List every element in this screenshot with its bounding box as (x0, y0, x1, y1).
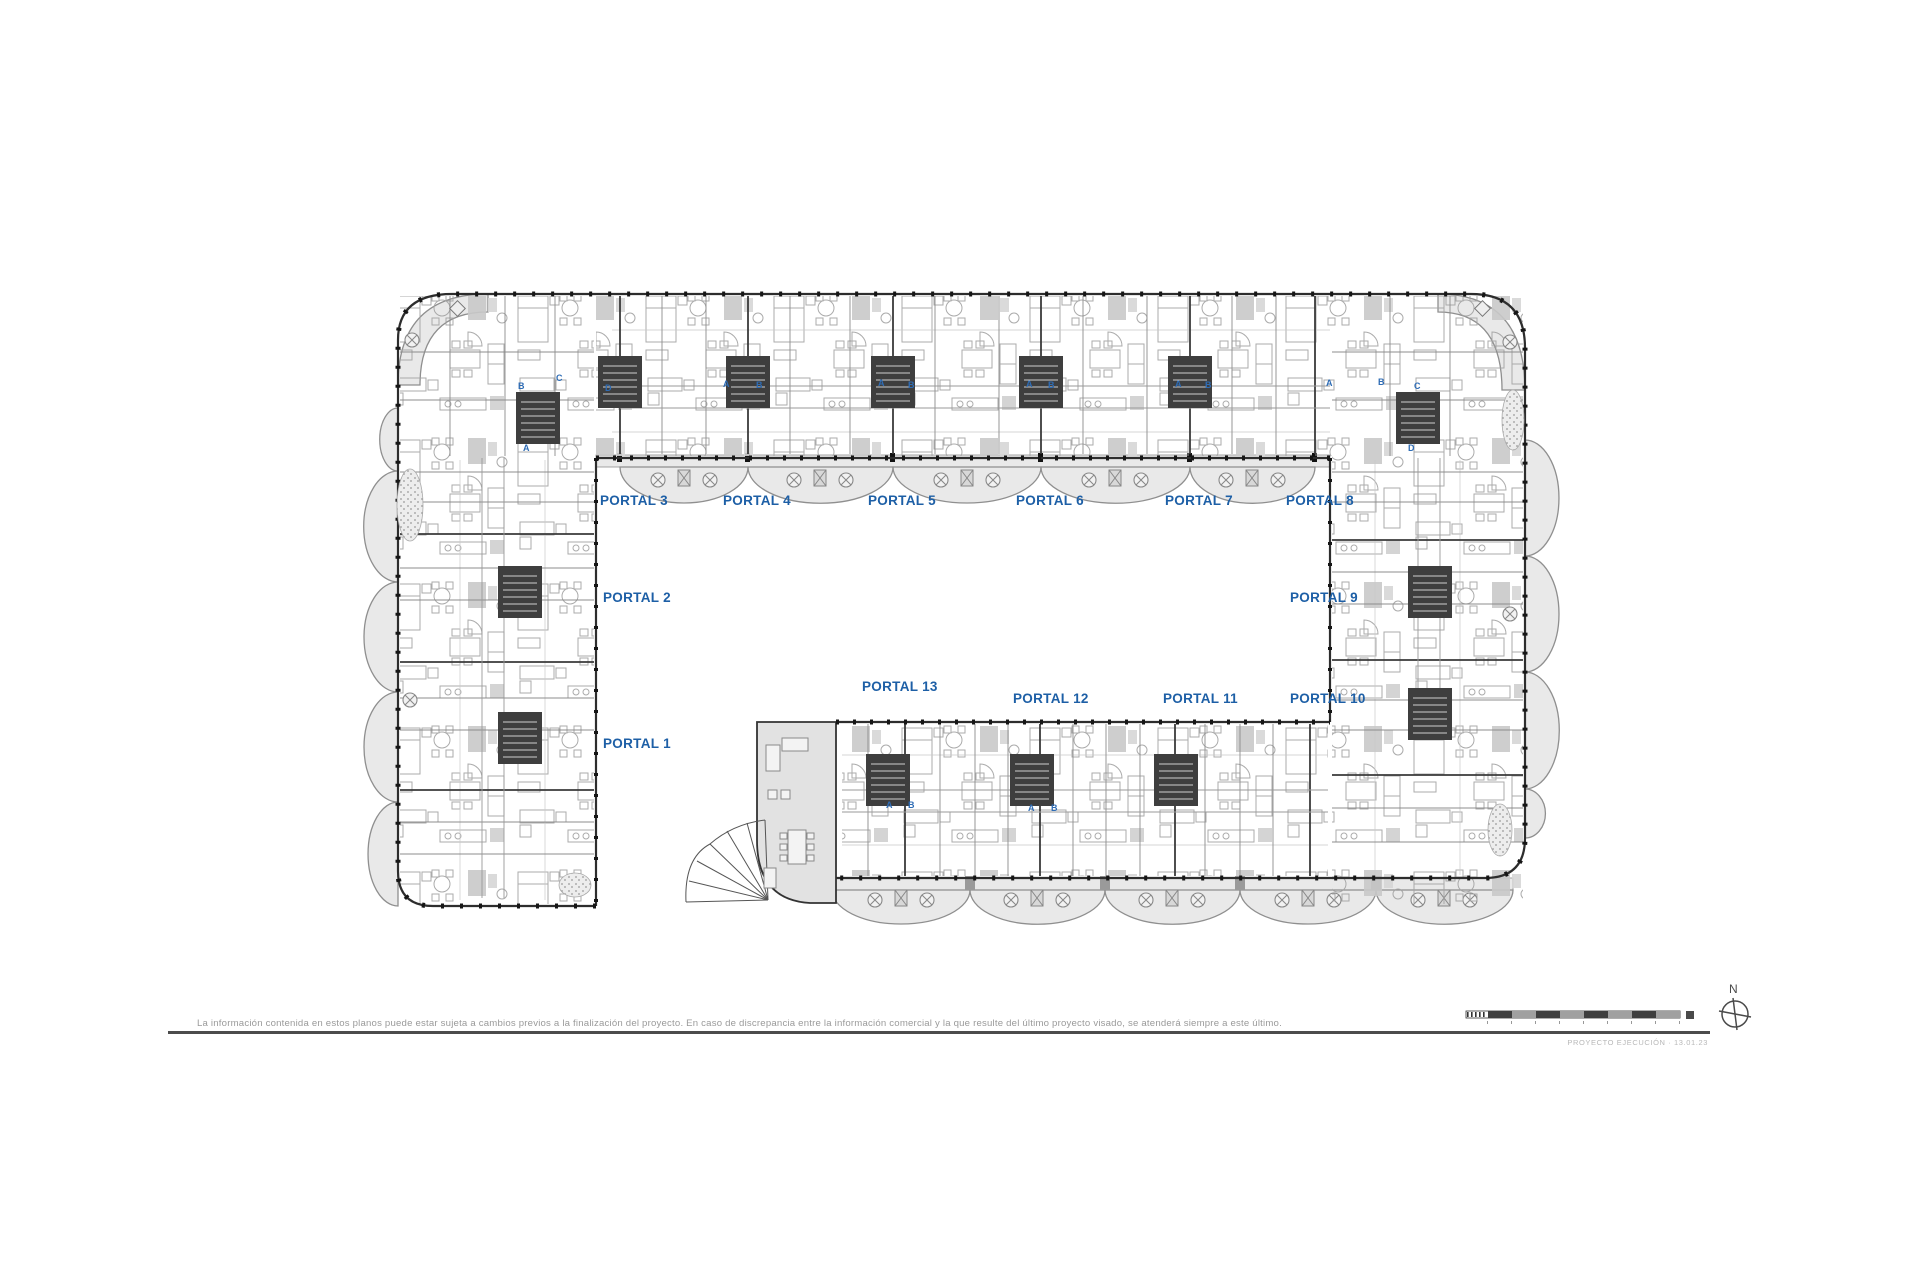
unit-letter: C (556, 373, 563, 383)
portal-label-12: PORTAL 12 (1013, 691, 1089, 706)
portal-label-11: PORTAL 11 (1163, 691, 1238, 706)
portal-label-5: PORTAL 5 (868, 493, 936, 508)
unit-letter: A (523, 443, 530, 453)
portal-label-8: PORTAL 8 (1286, 493, 1354, 508)
unit-letter: D (605, 383, 612, 393)
unit-letter: B (1205, 380, 1212, 390)
portal-label-10: PORTAL 10 (1290, 691, 1366, 706)
unit-letter: B (1378, 377, 1385, 387)
right-balconies (1525, 440, 1559, 838)
north-compass (1719, 998, 1751, 1030)
floor-plan-page: PORTAL 1 PORTAL 2 PORTAL 3 PORTAL 4 PORT… (0, 0, 1920, 1280)
portal-label-7: PORTAL 7 (1165, 493, 1233, 508)
portal-label-6: PORTAL 6 (1016, 493, 1084, 508)
portal-label-2: PORTAL 2 (603, 590, 671, 605)
scale-bar (1466, 1011, 1694, 1024)
unit-letter: A (1175, 379, 1182, 389)
footer-symbols: N (1455, 970, 1765, 1060)
unit-letter: B (756, 380, 763, 390)
unit-letter: A (886, 800, 893, 810)
portal-label-13: PORTAL 13 (862, 679, 938, 694)
unit-letter: C (1414, 381, 1421, 391)
unit-letter: A (1326, 378, 1333, 388)
unit-letter: B (908, 800, 915, 810)
portal-label-3: PORTAL 3 (600, 493, 668, 508)
unit-letter: A (878, 378, 885, 388)
left-balconies (364, 408, 398, 906)
floor-plan-drawing (0, 0, 1920, 1280)
unit-letter: B (518, 381, 525, 391)
disclaimer-text: La información contenida en estos planos… (197, 1018, 1497, 1029)
unit-letter: A (1026, 379, 1033, 389)
unit-letter: B (1048, 380, 1055, 390)
unit-letter: B (908, 380, 915, 390)
unit-letter: A (1028, 803, 1035, 813)
unit-letter: A (723, 379, 730, 389)
portal-label-9: PORTAL 9 (1290, 590, 1358, 605)
unit-letter: D (1408, 443, 1415, 453)
portal-label-4: PORTAL 4 (723, 493, 791, 508)
north-label: N (1729, 982, 1738, 996)
terrace (686, 722, 836, 903)
unit-letter: B (1051, 803, 1058, 813)
portal-label-1: PORTAL 1 (603, 736, 671, 751)
